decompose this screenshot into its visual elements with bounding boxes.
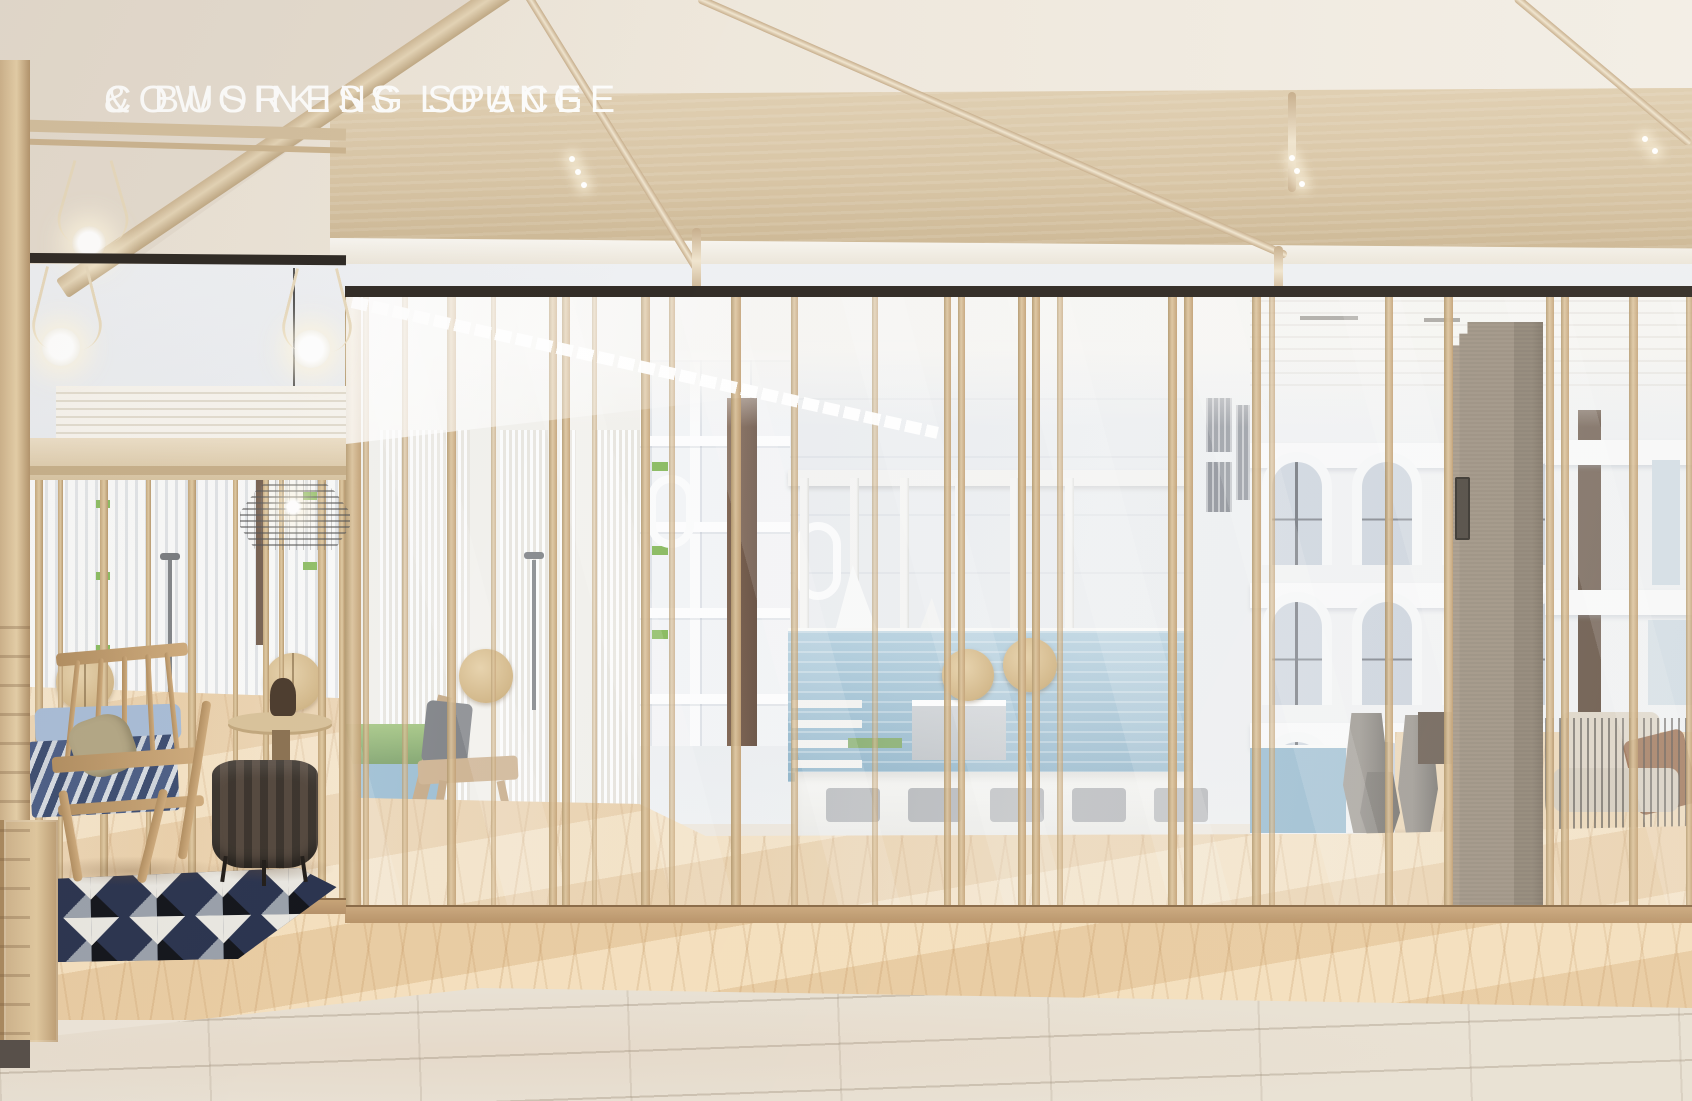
chair-shadow [36, 856, 226, 886]
glass-mullion [1184, 292, 1193, 918]
spotlight [569, 156, 575, 162]
barrel-pouf [212, 760, 318, 868]
timber-slat [58, 470, 63, 900]
pouf-leg [262, 860, 266, 886]
spotlight [1642, 136, 1648, 142]
glass-mullion [1385, 292, 1393, 918]
glass-mullion [1032, 292, 1040, 918]
pendant-bulb-glow [284, 498, 302, 516]
glass-mullion [958, 292, 965, 918]
dark-vase [270, 678, 296, 716]
white-slat-ceiling [56, 386, 346, 438]
glass-mullion [872, 292, 878, 918]
corner-post-foot [0, 1040, 30, 1068]
spotlight [581, 182, 587, 188]
glass-mullion [1444, 292, 1453, 918]
glass-mullion [1057, 292, 1063, 918]
black-track-rail [345, 286, 1692, 297]
corner-post-ribs [0, 600, 30, 1040]
render-viewport: COWORKING SPACE & BUSINESS LOUNGE [0, 0, 1692, 1101]
glass-mullion [1252, 292, 1261, 918]
left-room-rail [0, 466, 346, 475]
spotlight [1299, 181, 1305, 187]
round-door-handle [1003, 638, 1057, 692]
glass-mullion [1546, 292, 1554, 918]
glass-mullion [1629, 292, 1638, 918]
spotlight [1289, 155, 1295, 161]
concrete-column [1452, 322, 1543, 906]
glass-mullion [1686, 292, 1692, 918]
pendant-bulb-glow [292, 330, 330, 368]
light-conduit [692, 228, 701, 294]
light-conduit [1288, 92, 1296, 192]
column-access-panel [1455, 477, 1470, 540]
glass-mullion [944, 292, 951, 918]
glass-bottom-rail [345, 905, 1692, 923]
spotlight [1294, 168, 1300, 174]
spotlight [1652, 148, 1658, 154]
glass-mullion [1018, 292, 1026, 918]
round-door-handle [459, 649, 513, 703]
spotlight [575, 169, 581, 175]
glass-mullion [1168, 292, 1177, 918]
pendant-bulb-glow [42, 328, 80, 366]
glass-mullion [1269, 292, 1275, 918]
glass-mullion [1561, 292, 1569, 918]
caption-line-2: & BUSINESS LOUNGE [104, 70, 622, 130]
